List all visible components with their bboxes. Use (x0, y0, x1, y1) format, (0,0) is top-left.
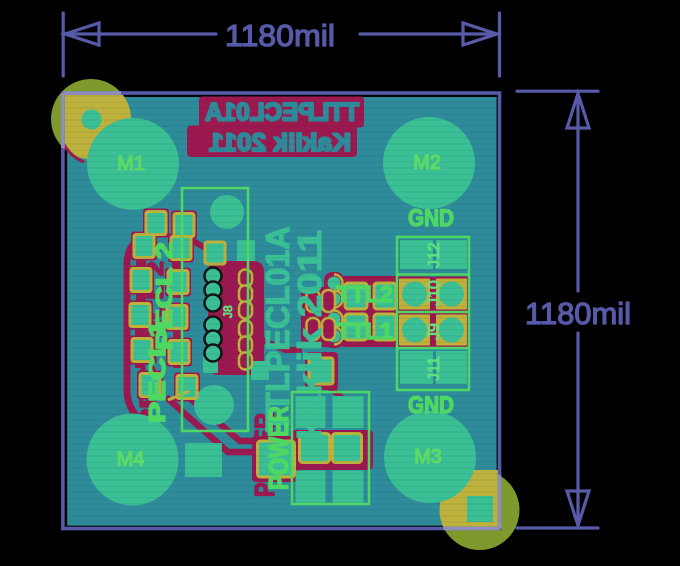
svg-text:J10: J10 (426, 280, 443, 306)
svg-text:M4: M4 (117, 449, 145, 471)
svg-text:TTL2: TTL2 (336, 281, 393, 307)
svg-text:J11: J11 (426, 356, 443, 381)
svg-text:1180mil: 1180mil (525, 296, 631, 331)
svg-text:PECL1: PECL1 (144, 320, 170, 423)
svg-text:TTL1: TTL1 (336, 318, 393, 344)
svg-text:GND: GND (408, 205, 454, 232)
svg-text:TTLPECL01A: TTLPECL01A (205, 99, 359, 127)
svg-text:Kaklik 2011: Kaklik 2011 (209, 129, 351, 157)
svg-text:M2: M2 (413, 152, 441, 174)
svg-text:M3: M3 (414, 446, 442, 468)
svg-text:J12: J12 (426, 242, 443, 268)
svg-text:POWER: POWER (263, 406, 294, 490)
svg-text:J8: J8 (221, 305, 235, 318)
svg-text:M1: M1 (117, 153, 145, 175)
svg-text:J9: J9 (426, 323, 443, 340)
svg-text:1180mil: 1180mil (225, 18, 335, 53)
svg-text:GND: GND (408, 392, 454, 419)
